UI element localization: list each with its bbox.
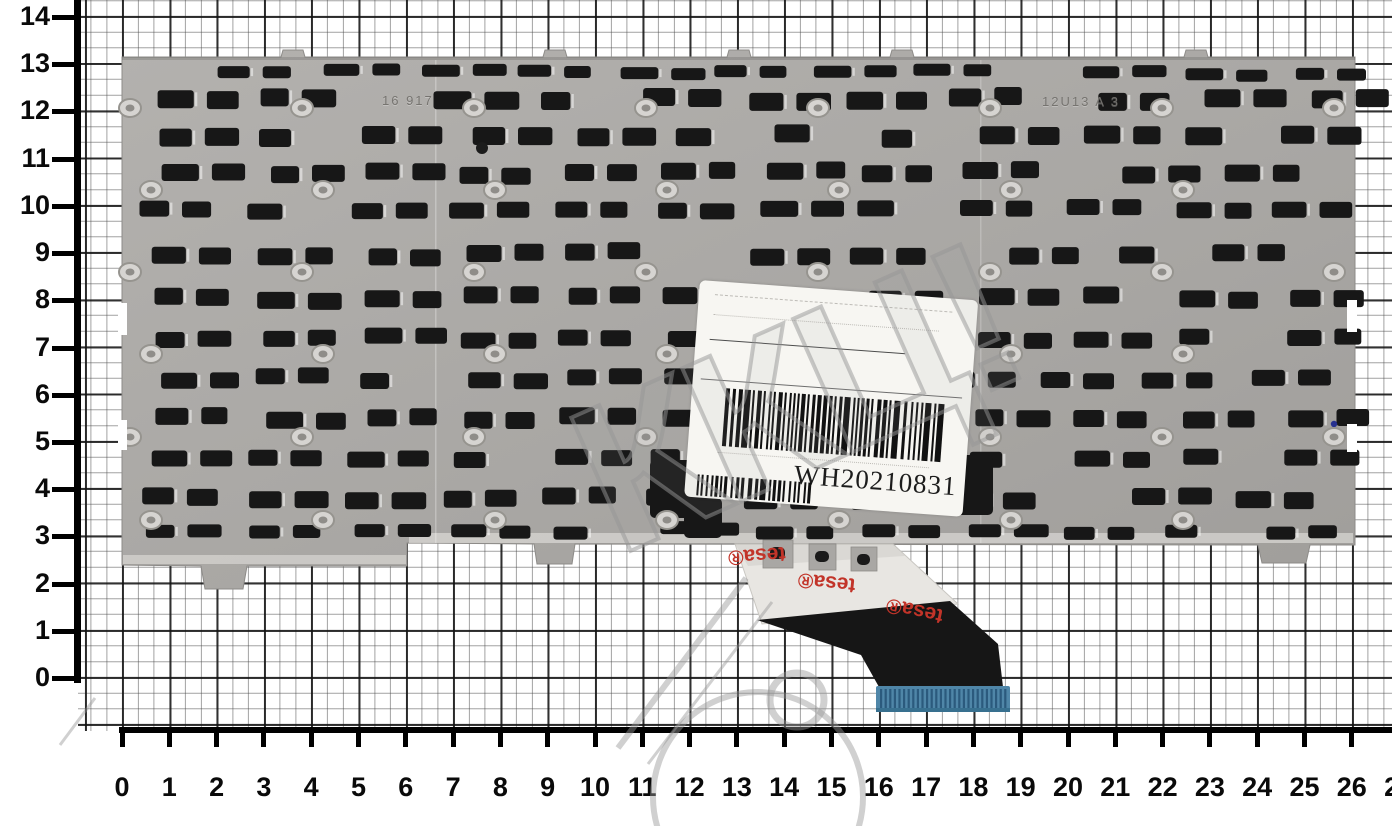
cutout-hole [501,168,530,185]
cutout-hole [398,451,429,467]
cutout-hole [806,526,833,539]
cutout-hole [567,369,596,385]
cutout-hole [1356,89,1389,107]
cutout-highlight [278,452,280,464]
cutout-hole [1179,290,1215,307]
cutout-highlight [1110,334,1112,346]
connector-tooth [903,689,905,708]
cutout-highlight [895,202,897,214]
cutout-hole [700,203,735,219]
cutout-hole [610,286,640,303]
cutout-highlight [1016,290,1018,303]
cutout-highlight [386,454,388,466]
cutout-highlight [1174,375,1176,387]
rivet-center [814,105,823,112]
cutout-highlight [596,246,598,259]
cutout-hole [1083,287,1119,304]
cutout-hole [658,203,687,219]
barcode-bar [768,480,772,501]
cutout-hole [1236,70,1267,82]
cutout-hole [187,489,218,506]
cutout-highlight [1120,289,1122,302]
cutout-highlight [494,414,496,427]
barcode-bar [730,477,734,498]
cutout-highlight [1156,169,1158,182]
sticker-faint-line [713,314,938,332]
cutout-hole [152,451,188,467]
cutout-highlight [688,205,690,217]
cutout-hole [760,66,787,78]
plate-etched-text: 12U13 A 3 [1042,94,1120,109]
cutout-highlight [188,453,190,465]
barcode-bar [705,475,709,496]
cutout-hole [473,64,507,76]
cutout-hole [1119,247,1154,264]
cutout-hole [1288,410,1323,427]
cutout-hole [410,249,441,266]
cutout-hole [1074,332,1109,348]
cutout-highlight [1198,527,1200,536]
cutout-highlight [487,454,489,466]
connector-tooth [894,689,896,708]
cutout-highlight [1121,128,1123,142]
cutout-hole [816,162,845,179]
cutout-hole [506,412,535,429]
cutout-hole [969,524,1001,537]
connector-tooth [898,689,900,708]
cutout-highlight [1219,451,1221,463]
ribbon-cable [735,540,1010,712]
cutout-hole [497,202,529,218]
cutout-hole [312,165,345,182]
cutout-hole [365,290,400,307]
cutout-hole [369,248,397,265]
connector-tooth [963,689,965,708]
connector-tooth [981,689,983,708]
cutout-hole [205,128,239,146]
cutout-hole [1284,492,1314,509]
cutout-hole [1009,248,1039,265]
top-edge-shade [122,57,1355,60]
cutout-hole [1308,525,1337,538]
cutout-hole [460,167,489,184]
cutout-highlight [386,526,388,535]
cutout-hole [555,202,587,218]
cutout-hole [212,164,245,181]
cutout-hole [509,333,537,349]
cutout-hole [266,412,303,429]
rivet-center [298,105,307,112]
rivet-center [491,517,500,524]
cutout-highlight [397,411,399,424]
cutout-hole [964,64,992,76]
connector-tooth [954,689,956,708]
cutout-hole [1142,373,1174,389]
connector-tooth [1000,689,1002,708]
cutout-hole [1067,199,1100,215]
cutout-hole [1132,488,1165,505]
cutout-hole [298,367,329,383]
rivet-center [835,187,844,194]
cutout-highlight [1296,529,1298,538]
cutout-hole [1073,410,1104,427]
photo-canvas: { "ruler": { "x_labels": ["0","1","2","3… [0,0,1392,826]
cutout-hole [1225,203,1252,219]
cutout-hole [559,407,594,424]
cutout-hole [882,130,912,148]
cutout-highlight [597,371,599,383]
cutout-highlight [712,130,714,144]
cutout-hole [187,524,221,537]
cutout-highlight [577,490,579,503]
cutout-hole [1272,202,1307,218]
cutout-highlight [1322,292,1324,305]
cutout-highlight [976,374,978,386]
cutout-hole [259,129,291,147]
cutout-hole [248,450,277,466]
rivet-center [147,187,156,194]
cutout-hole [963,162,998,179]
cutout-highlight [398,250,400,263]
cutout-hole [324,64,360,76]
cutout-hole [709,162,735,179]
cutout-hole [1228,411,1255,428]
cutout-hole [1228,292,1258,309]
cutout-highlight [186,334,188,346]
barcode-bar [735,477,740,498]
cutout-hole [749,93,783,111]
cutout-hole [514,373,548,389]
cutout-highlight [571,94,573,108]
cutout-hole [160,129,192,147]
connector-tooth [949,689,951,708]
cutout-hole [257,292,295,309]
sticker-rule-line [710,339,906,354]
cutout-highlight [610,130,612,144]
cutout-hole [949,89,981,107]
rivet-center [835,517,844,524]
connector-tooth [1004,689,1006,708]
cutout-highlight [184,290,186,303]
cutout-hole [980,126,1015,144]
cutout-hole [1028,127,1060,145]
cutout-hole [569,288,597,305]
cutout-hole [366,163,400,180]
cutout-hole [1083,373,1114,389]
cutout-highlight [595,166,597,179]
rivet-center [491,351,500,358]
cutout-hole [862,165,893,182]
cutout-hole [913,64,950,76]
cutout-hole [621,67,659,79]
rivet-center [642,269,651,276]
rivet-center [491,187,500,194]
cutout-hole [467,245,502,262]
rivet-center [986,105,995,112]
cutout-hole [290,450,321,466]
cutout-highlight [884,94,886,108]
rivet-center [470,269,479,276]
cutout-hole [271,166,299,183]
cutout-hole [1123,452,1150,468]
cutout-hole [1298,370,1331,386]
barcode-large [722,388,948,462]
cutout-highlight [198,375,200,387]
cutout-hole [554,527,588,540]
cutout-highlight [489,169,491,182]
cutout-hole [1252,370,1285,386]
cutout-hole [258,248,293,265]
cutout-hole [750,249,784,266]
cutout-hole [347,452,384,468]
cutout-hole [864,65,896,77]
rivet-center [470,434,479,441]
cutout-highlight [1216,414,1218,427]
cutout-hole [1178,488,1212,505]
cutout-highlight [175,527,177,536]
cutout-highlight [811,126,813,140]
cutout-hole [1064,527,1095,540]
cutout-hole [162,164,199,181]
cutout-highlight [503,247,505,260]
cutout-hole [1024,333,1052,349]
rivet-center [298,434,307,441]
connector-edge [876,708,1010,712]
cutout-hole [392,492,427,509]
cutout-hole [1041,372,1070,388]
cutout-hole [345,492,379,509]
barcode-bar [793,481,797,502]
cutout-hole [847,92,884,110]
cutout-hole [1258,244,1285,261]
rivet-center [319,517,328,524]
connector-tooth [917,689,919,708]
cutout-hole [756,527,794,540]
cutout-highlight [400,165,402,178]
cutout-highlight [403,330,405,342]
cutout-highlight [499,288,501,301]
cutout-hole [1284,450,1317,466]
cutout-hole [988,372,1016,388]
cutout-highlight [1224,70,1226,78]
cutout-highlight [1128,95,1130,109]
cutout-highlight [1315,128,1317,142]
cutout-hole [1225,165,1260,182]
connector-tooth [990,689,992,708]
cutout-highlight [952,66,954,74]
cutout-highlight [1210,331,1212,343]
cutout-hole [468,372,501,388]
rivet-center [319,351,328,358]
cutout-hole [1320,202,1353,218]
cutout-hole [1337,409,1370,426]
cutout-highlight [170,203,172,215]
cutout-hole [365,328,403,344]
cutout-hole [161,373,197,389]
cutout-hole [1028,289,1060,306]
connector-tooth [940,689,942,708]
cutout-hole [451,524,486,537]
cutout-highlight [659,69,661,77]
barcode-bar [714,476,719,497]
cutout-hole [661,163,696,180]
cutout-highlight [1213,204,1215,216]
cutout-hole [905,165,932,182]
rivet-center [1179,351,1188,358]
cutout-hole [608,242,641,259]
cutout-hole [811,201,844,217]
cutout-hole [464,412,492,429]
cutout-hole [396,203,428,219]
cutout-hole [484,92,519,110]
cutout-highlight [1016,128,1018,142]
cutout-hole [601,330,631,346]
cutout-hole [1205,89,1241,107]
cutout-hole [979,288,1015,305]
cutout-hole [207,91,239,109]
cutout-hole [413,291,442,308]
cutout-hole [676,128,711,146]
barcode-bar [890,401,900,459]
rivet-center [470,105,479,112]
cutout-hole [908,525,940,538]
barcode-bar [797,482,801,503]
cutout-hole [210,372,239,388]
cutout-hole [896,248,925,265]
cutout-hole [767,163,803,180]
rivet-center [147,351,156,358]
cutout-highlight [384,205,386,217]
cutout-highlight [1101,201,1103,213]
rivet-center [298,269,307,276]
rivet-center [1179,517,1188,524]
cutout-hole [1083,66,1119,78]
cutout-hole [511,286,539,303]
connector-tooth [889,689,891,708]
cutout-hole [1281,126,1314,144]
cutout-hole [688,89,721,107]
cutout-hole [589,487,616,504]
cutout-hole [256,368,285,384]
cutout-highlight [1325,70,1327,78]
cutout-hole [355,524,385,537]
cutout-hole [485,490,517,507]
cutout-hole [449,203,484,219]
cutout-highlight [1166,490,1168,503]
cutout-hole [1133,126,1160,144]
rivet-center [1158,434,1167,441]
cutout-highlight [485,205,487,217]
cutout-hole [1177,202,1212,218]
barcode-bar [747,478,753,499]
cutout-hole [608,408,637,425]
barcode-bar [900,401,907,459]
cutout-hole [1006,201,1032,217]
cutout-hole [499,526,530,539]
cutout-hole [1075,451,1110,467]
cutout-hole [409,408,436,425]
cutout-highlight [380,494,382,507]
cutout-hole [1337,69,1366,81]
cutout-hole [565,164,594,181]
barcode-bar [710,475,714,496]
cutout-highlight [1005,411,1007,424]
cutout-highlight [175,489,177,502]
product-sticker: WH20210831 [684,280,978,517]
cutout-hole [352,203,383,219]
cutout-hole [196,289,229,306]
cutout-highlight [1040,250,1042,263]
cutout-highlight [884,250,886,263]
rivet-center [814,269,823,276]
cutout-hole [896,92,927,110]
cutout-hole [261,88,289,106]
cutout-highlight [401,292,403,305]
barcode-bar [754,479,759,500]
cutout-hole [1327,127,1361,145]
cutout-hole [663,287,698,304]
cutout-hole [850,248,883,265]
cutout-highlight [286,370,288,382]
cutout-hole [542,488,576,505]
cutout-hole [368,409,397,426]
cutout-hole [454,452,486,468]
connector-tooth [977,689,979,708]
cutout-highlight [187,249,189,262]
cutout-highlight [588,204,590,216]
cutout-highlight [784,95,786,109]
cutout-highlight [1003,454,1005,466]
cutout-highlight [1272,493,1274,506]
barcode-bar [807,482,812,503]
cutout-highlight [293,250,295,263]
cutout-hole [156,332,185,348]
cutout-hole [263,66,291,78]
cutout-hole [1186,372,1212,388]
connector-tooth [995,689,997,708]
cutout-highlight [552,67,554,75]
cutout-highlight [473,493,475,506]
cutout-highlight [999,164,1001,177]
barcode-bar [700,475,704,496]
cutout-highlight [1120,68,1122,76]
cutout-hole [1132,65,1166,77]
cutout-highlight [913,132,915,146]
cutout-hole [564,66,591,78]
cutout-hole [1122,333,1153,349]
cutout-highlight [1216,292,1218,305]
cutout-hole [152,247,186,264]
cutout-hole [1253,89,1286,107]
cutout-hole [1296,68,1324,80]
cutout-hole [308,293,342,310]
cutout-hole [1266,527,1295,540]
cutout-highlight [676,90,678,104]
cutout-highlight [396,128,398,142]
rivet-center [986,434,995,441]
cutout-highlight [296,333,298,345]
cutout-hole [263,331,295,347]
cutout-highlight [283,493,285,506]
cutout-hole [862,524,895,537]
cutout-hole [422,65,460,77]
cutout-highlight [893,167,895,180]
rivet-center [126,105,135,112]
cutout-highlight [1105,412,1107,425]
barcode-bar [719,476,723,497]
cutout-hole [975,409,1003,426]
rivet-center [1007,351,1016,358]
